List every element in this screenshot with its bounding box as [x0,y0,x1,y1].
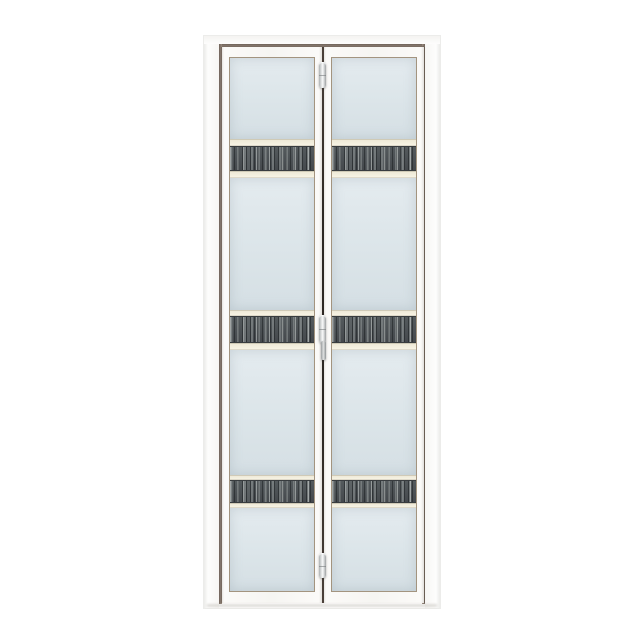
glass-pane [230,58,314,139]
cream-rail [230,171,314,178]
accent-strip [230,316,314,343]
center-hinge [319,315,326,343]
frame-head [204,36,440,44]
frame-jamb-right [425,36,440,608]
door-frame [204,36,440,608]
glass-stack-left [229,57,315,592]
glass-pane [332,508,416,591]
door-leaf-left [222,47,322,603]
door-handle [321,341,326,360]
glass-pane [332,350,416,475]
accent-strip [332,316,416,343]
bottom-hinge [319,553,326,578]
top-hinge [319,62,326,88]
bifold-leaves [222,47,424,603]
glass-pane [332,178,416,310]
accent-strip [332,480,416,503]
glass-stack-right [331,57,417,592]
cream-rail [332,139,416,146]
product-photo [0,0,640,640]
cream-rail [332,171,416,178]
accent-strip [230,480,314,503]
accent-strip [332,146,416,171]
cream-rail [230,343,314,350]
cream-rail [230,139,314,146]
glass-pane [230,178,314,310]
frame-jamb-left [204,36,219,608]
floor-shadow [207,604,437,607]
accent-strip [230,146,314,171]
door-leaf-right [324,47,424,603]
cream-rail [332,343,416,350]
glass-pane [332,58,416,139]
glass-pane [230,508,314,591]
glass-pane [230,350,314,475]
